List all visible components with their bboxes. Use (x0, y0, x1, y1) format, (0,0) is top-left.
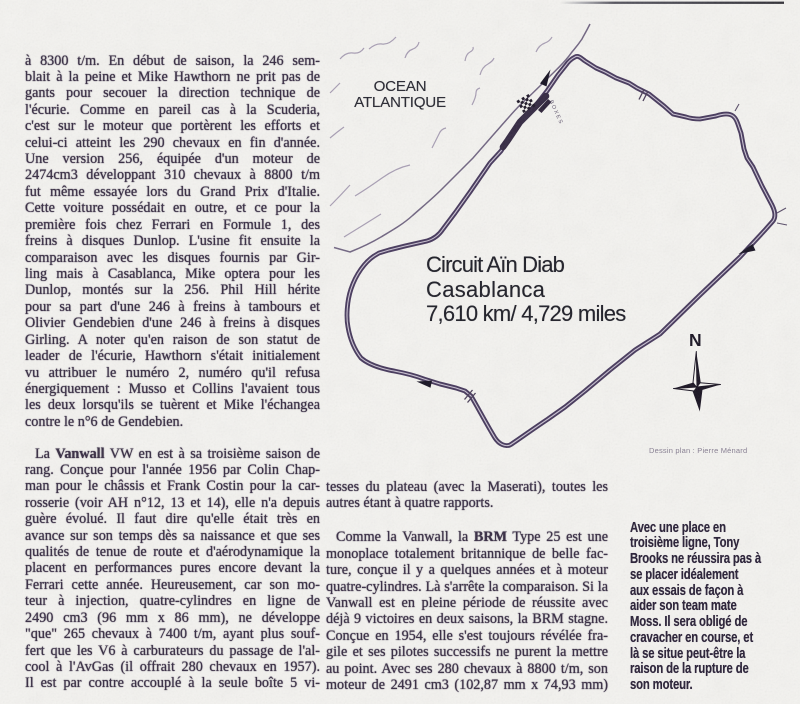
svg-text:BOXES: BOXES (548, 99, 564, 126)
